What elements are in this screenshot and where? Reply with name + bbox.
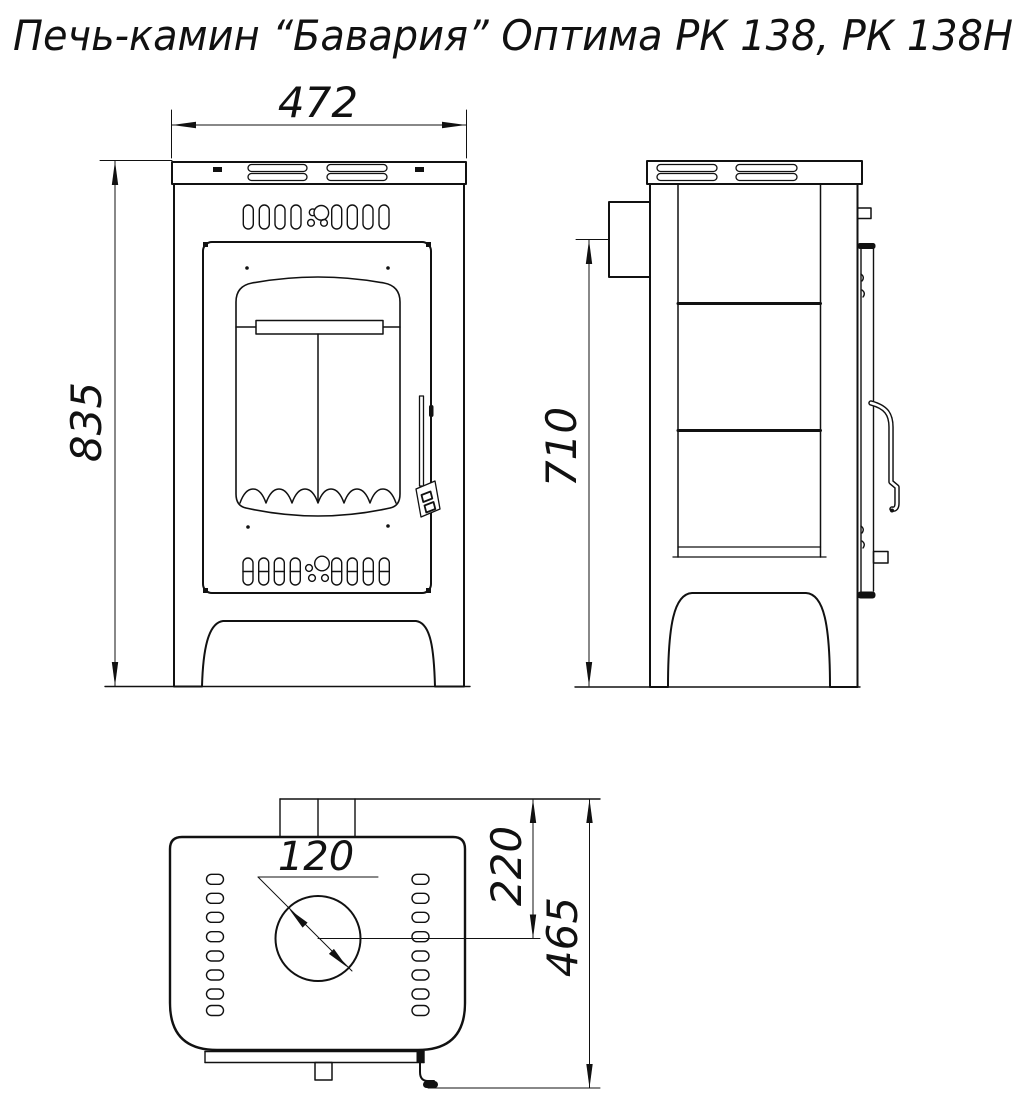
- arrowhead: [329, 949, 347, 967]
- top-plate-edge: [172, 162, 466, 184]
- drawing-title: Печь-камин “Бавария” Оптима РК 138, РК 1…: [13, 11, 1013, 60]
- vent-slot: [347, 205, 357, 229]
- door-screw: [386, 524, 390, 528]
- arrowhead: [586, 662, 592, 686]
- vent-slot: [207, 951, 224, 961]
- door-corner-mark: [203, 242, 208, 247]
- vent-slot: [412, 1006, 429, 1016]
- lower-vent-row: [243, 556, 389, 585]
- front-view: 472 835: [62, 78, 470, 687]
- door-handle-side: [871, 403, 897, 513]
- top-plate-vents-front: [248, 165, 387, 181]
- door-handle-front: [416, 396, 440, 517]
- handle-grip-top: [423, 1081, 438, 1088]
- vent-slot: [207, 912, 224, 922]
- glass-retainer-bar: [236, 321, 400, 503]
- vent-slot: [412, 951, 429, 961]
- vent-slot: [291, 205, 301, 229]
- hinge-boss: [858, 208, 872, 219]
- vent-slot: [248, 174, 307, 181]
- dim-width-472: 472: [172, 78, 467, 158]
- dim-outlet-height-label: 710: [537, 407, 586, 487]
- vent-slot: [412, 912, 429, 922]
- top-view: 120 220 465: [170, 799, 600, 1088]
- bavaria-logo-lower: [306, 556, 330, 581]
- stove-body-side: [650, 184, 858, 687]
- plate-fastener: [213, 167, 222, 172]
- arrowhead: [112, 161, 118, 185]
- logo-circle-small: [322, 575, 329, 582]
- technical-drawing: Печь-камин “Бавария” Оптима РК 138, РК 1…: [0, 0, 1025, 1106]
- vent-slot: [259, 205, 269, 229]
- side-panel: [673, 184, 826, 557]
- door-screw: [246, 525, 250, 529]
- dim-height-label: 835: [62, 382, 111, 462]
- door-edge-cap: [858, 243, 876, 249]
- vent-slot: [412, 893, 429, 903]
- vent-slot: [412, 874, 429, 884]
- door-corner-mark: [426, 588, 431, 593]
- dim-flue-offset-220: 220: [482, 799, 536, 939]
- top-plate-side: [647, 161, 862, 184]
- logo-circle-large: [315, 556, 330, 571]
- flue-collar-top: [280, 799, 600, 837]
- handle-rod: [420, 396, 424, 486]
- vent-slot: [207, 989, 224, 999]
- dim-flue-diameter-label: 120: [278, 834, 354, 880]
- vent-slot: [412, 932, 429, 942]
- arrowhead: [586, 1064, 592, 1088]
- drawing-page: Печь-камин “Бавария” Оптима РК 138, РК 1…: [0, 0, 1025, 1106]
- dim-height-835: 835: [62, 161, 172, 687]
- door-corner-mark: [426, 242, 431, 247]
- logo-circle-small: [309, 575, 316, 582]
- door-edge-cap: [858, 592, 876, 599]
- latch-peg: [874, 552, 889, 564]
- lip-hinge-mark: [417, 1052, 425, 1063]
- arrowhead: [290, 910, 308, 928]
- bavaria-logo-upper: [308, 206, 329, 227]
- retainer-bar: [256, 321, 383, 335]
- vent-slot: [207, 893, 224, 903]
- vent-slot: [412, 989, 429, 999]
- vent-slot: [379, 205, 389, 229]
- vent-column-right: [412, 874, 429, 1015]
- arrowhead: [172, 122, 196, 128]
- logo-circle-large: [314, 206, 329, 221]
- dim-flue-offset-label: 220: [482, 826, 531, 906]
- arrowhead: [586, 240, 592, 264]
- vent-slot: [363, 205, 373, 229]
- vent-slot: [412, 970, 429, 980]
- vent-slot: [207, 874, 224, 884]
- arrowhead: [586, 799, 592, 823]
- rear-flue-outlet: [609, 202, 650, 277]
- upper-vent-row: [243, 205, 389, 229]
- door-corner-mark: [203, 588, 208, 593]
- vent-slot: [327, 165, 387, 172]
- vent-slot: [736, 165, 797, 172]
- logo-circle-small: [308, 219, 315, 226]
- vent-slot: [736, 174, 797, 181]
- vent-slot: [248, 165, 307, 172]
- arrowhead: [112, 662, 118, 686]
- vent-column-left: [207, 874, 224, 1015]
- dim-width-label: 472: [278, 78, 358, 127]
- plate-fastener: [415, 167, 424, 172]
- vent-slot: [657, 174, 717, 181]
- vent-slot: [657, 165, 717, 172]
- logo-circle-small: [321, 219, 328, 226]
- door-screw: [386, 266, 390, 270]
- vent-slot: [327, 174, 387, 181]
- handle-stem-top: [420, 1063, 434, 1082]
- handle-tip: [890, 509, 894, 513]
- arrowhead: [442, 122, 466, 128]
- fire-door: [203, 242, 440, 593]
- arrowhead: [530, 915, 536, 939]
- side-view: 710: [537, 161, 897, 687]
- lip-center-tab: [315, 1063, 332, 1081]
- handle-bar-outline: [871, 403, 897, 509]
- door-edge-side: [858, 243, 889, 599]
- logo-circle-small: [306, 565, 313, 572]
- door-screw: [245, 266, 249, 270]
- arrowhead: [530, 799, 536, 823]
- dim-outlet-height-710: 710: [537, 240, 609, 687]
- vent-slot: [207, 1006, 224, 1016]
- dim-depth-465: 465: [538, 799, 593, 1088]
- vent-slot: [332, 205, 342, 229]
- handle-top-view: [420, 1063, 438, 1089]
- door-latch-keeper: [429, 405, 434, 417]
- vent-slot: [275, 205, 285, 229]
- vent-slot: [207, 932, 224, 942]
- top-plate-vents-side: [657, 165, 797, 181]
- front-lip-top: [205, 1052, 424, 1081]
- dim-depth-label: 465: [538, 897, 587, 977]
- vent-slot: [207, 970, 224, 980]
- top-plate-front: [172, 162, 466, 184]
- vent-slot: [243, 205, 253, 229]
- dim-flue-120: 120: [258, 834, 378, 971]
